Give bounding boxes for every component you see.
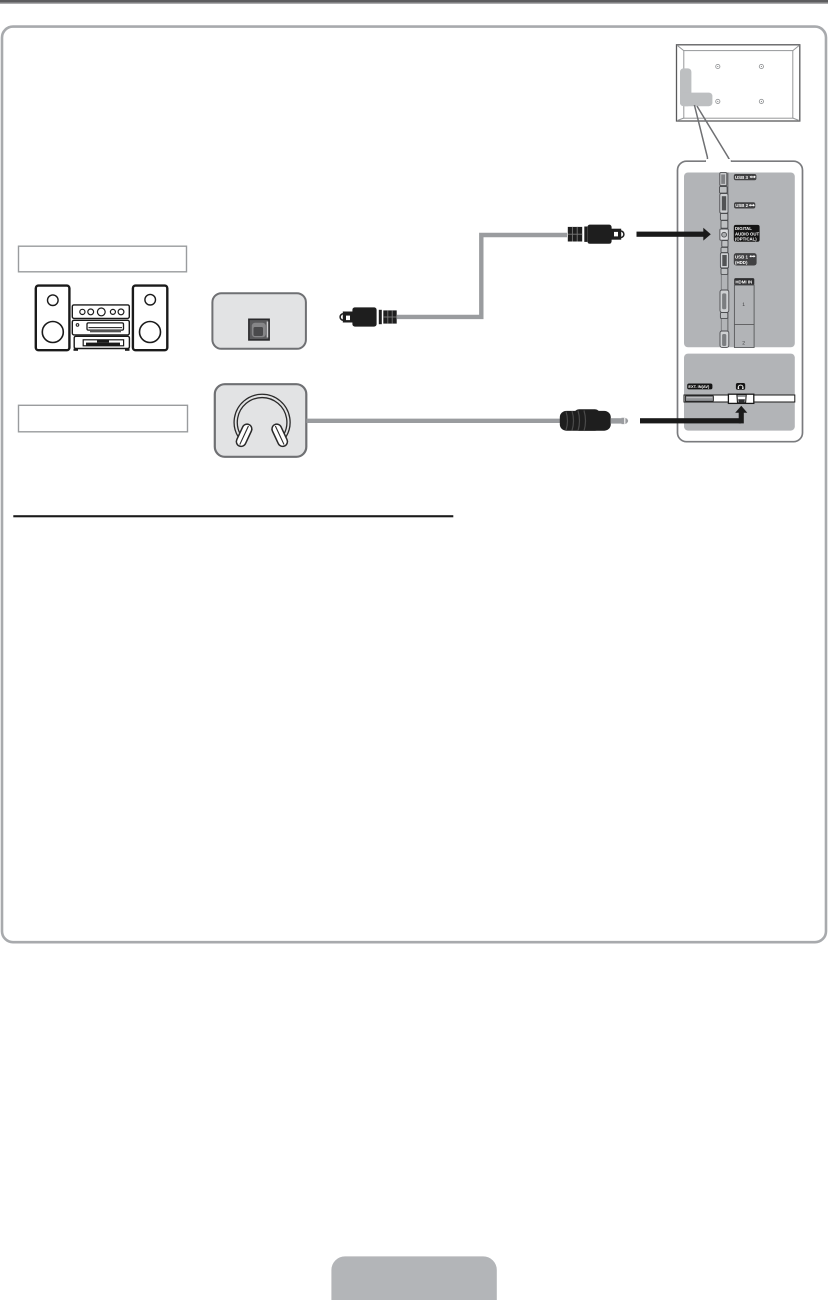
svg-text:HDMI IN: HDMI IN [735,279,752,284]
svg-text:(HDD): (HDD) [735,260,748,265]
svg-text:USB 1: USB 1 [735,254,748,259]
svg-text:2: 2 [742,341,745,347]
svg-text:(OPTICAL): (OPTICAL) [735,236,757,241]
svg-text:USB 3: USB 3 [735,175,748,180]
svg-text:1: 1 [742,302,745,308]
svg-text:EXT. IN(AV): EXT. IN(AV) [688,384,710,389]
svg-text:USB 2: USB 2 [735,203,748,208]
